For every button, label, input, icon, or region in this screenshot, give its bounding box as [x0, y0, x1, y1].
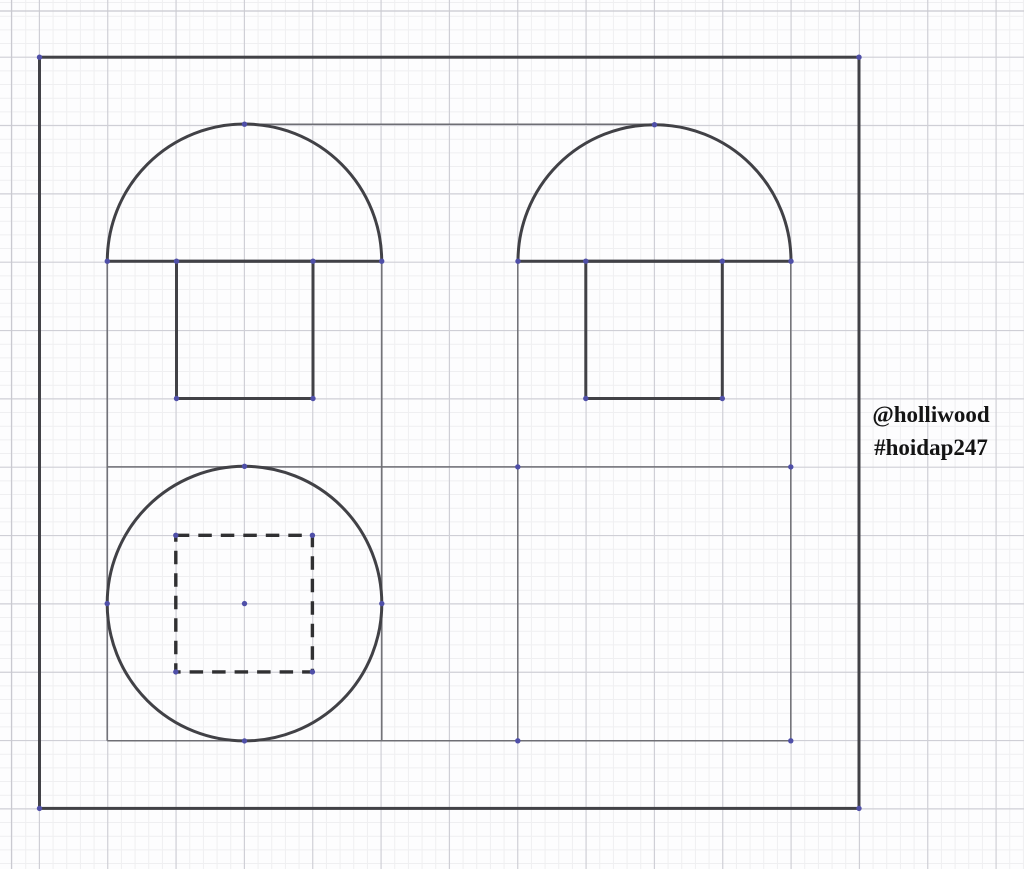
vertex-point: [242, 601, 247, 606]
vertex-point: [174, 259, 179, 264]
vertex-point: [242, 122, 247, 127]
vertex-point: [720, 396, 725, 401]
vertex-point: [788, 259, 793, 264]
drawing-canvas: @holliwood #hoidap247: [0, 0, 1024, 869]
vertex-point: [173, 669, 178, 674]
vertex-point: [652, 122, 657, 127]
vertex-point: [37, 806, 42, 811]
vertex-point: [856, 806, 861, 811]
vertex-point: [37, 55, 42, 60]
vertex-point: [720, 259, 725, 264]
vertex-point: [174, 396, 179, 401]
vertex-point: [515, 738, 520, 743]
vertex-point: [242, 464, 247, 469]
vertex-point: [173, 533, 178, 538]
watermark-handle: @holliwood: [860, 398, 1002, 431]
vertex-point: [310, 533, 315, 538]
vertex-point: [583, 396, 588, 401]
vertex-point: [379, 259, 384, 264]
vertex-point: [105, 601, 110, 606]
vertex-point: [310, 669, 315, 674]
vertex-point: [310, 259, 315, 264]
watermark: @holliwood #hoidap247: [860, 398, 1002, 464]
vertex-point: [105, 259, 110, 264]
vertex-point: [856, 55, 861, 60]
vertex-point: [379, 601, 384, 606]
vertex-point: [310, 396, 315, 401]
vertex-point: [242, 738, 247, 743]
vertex-point: [515, 464, 520, 469]
watermark-hashtag: #hoidap247: [860, 431, 1002, 464]
vertex-point: [788, 464, 793, 469]
vertex-point: [788, 738, 793, 743]
vertex-point: [583, 259, 588, 264]
vertex-point: [515, 259, 520, 264]
